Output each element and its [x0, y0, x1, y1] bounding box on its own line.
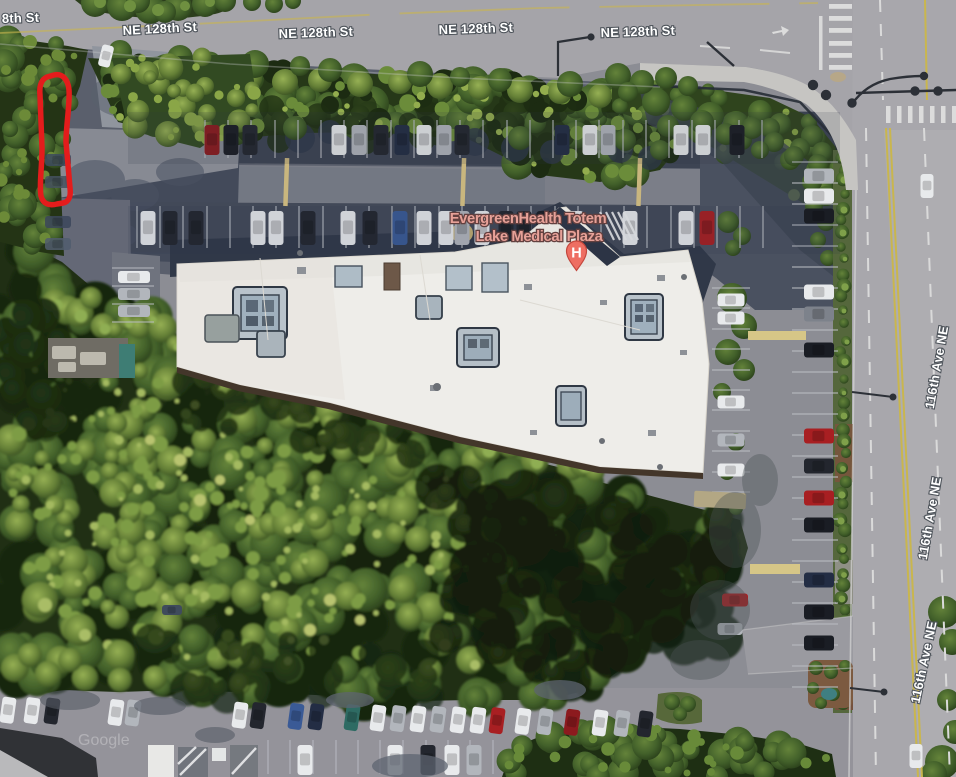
svg-text:8th St: 8th St	[2, 10, 40, 26]
svg-text:NE 128th St: NE 128th St	[600, 23, 675, 41]
svg-text:NE 128th St: NE 128th St	[278, 24, 353, 42]
svg-text:NE 128th St: NE 128th St	[438, 20, 513, 38]
svg-text:Google: Google	[78, 732, 130, 749]
svg-text:H: H	[571, 246, 581, 262]
svg-text:EvergreenHealth Totem: EvergreenHealth Totem	[450, 211, 607, 227]
svg-text:Lake Medical Plaza: Lake Medical Plaza	[476, 229, 604, 245]
